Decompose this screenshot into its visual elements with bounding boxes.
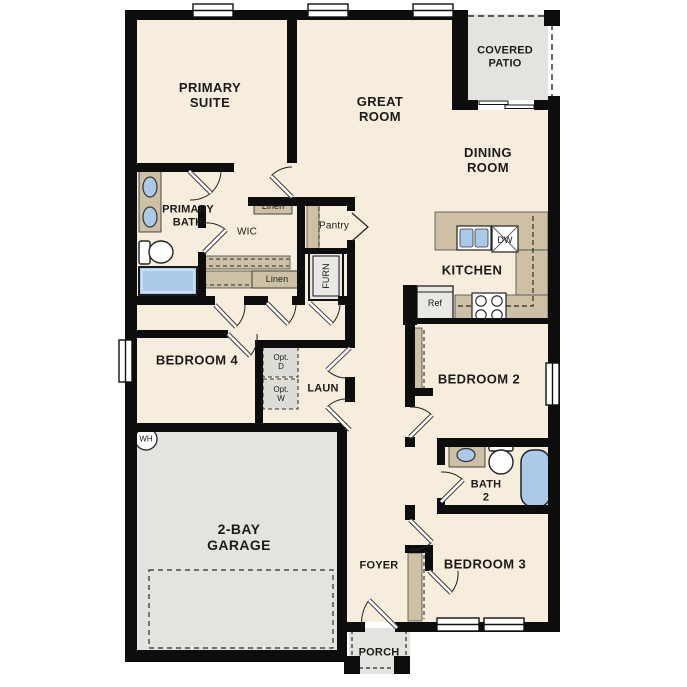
refrigerator-icon (417, 286, 453, 320)
window-icon (437, 618, 479, 631)
furnace-box (309, 252, 343, 300)
sink-icon (143, 207, 157, 227)
sink-icon (143, 177, 157, 197)
window-icon (484, 618, 524, 631)
tub-icon (521, 450, 550, 507)
opt-dryer-box (263, 347, 298, 377)
window-icon (308, 4, 348, 17)
floor-plan: PRIMARY SUITE GREAT ROOM COVERED PATIO D… (0, 0, 687, 687)
window-icon (546, 363, 559, 405)
sink-icon (457, 449, 475, 462)
floor-plan-drawing (0, 0, 687, 687)
window-icon (119, 340, 132, 382)
dishwasher-icon (492, 226, 518, 252)
window-icon (193, 4, 233, 17)
opt-washer-box (263, 379, 298, 409)
stove-icon (472, 293, 506, 322)
shower-icon (139, 267, 197, 295)
window-icon (413, 4, 453, 17)
toilet-icon (139, 241, 173, 264)
slider-door-icon (478, 100, 534, 110)
